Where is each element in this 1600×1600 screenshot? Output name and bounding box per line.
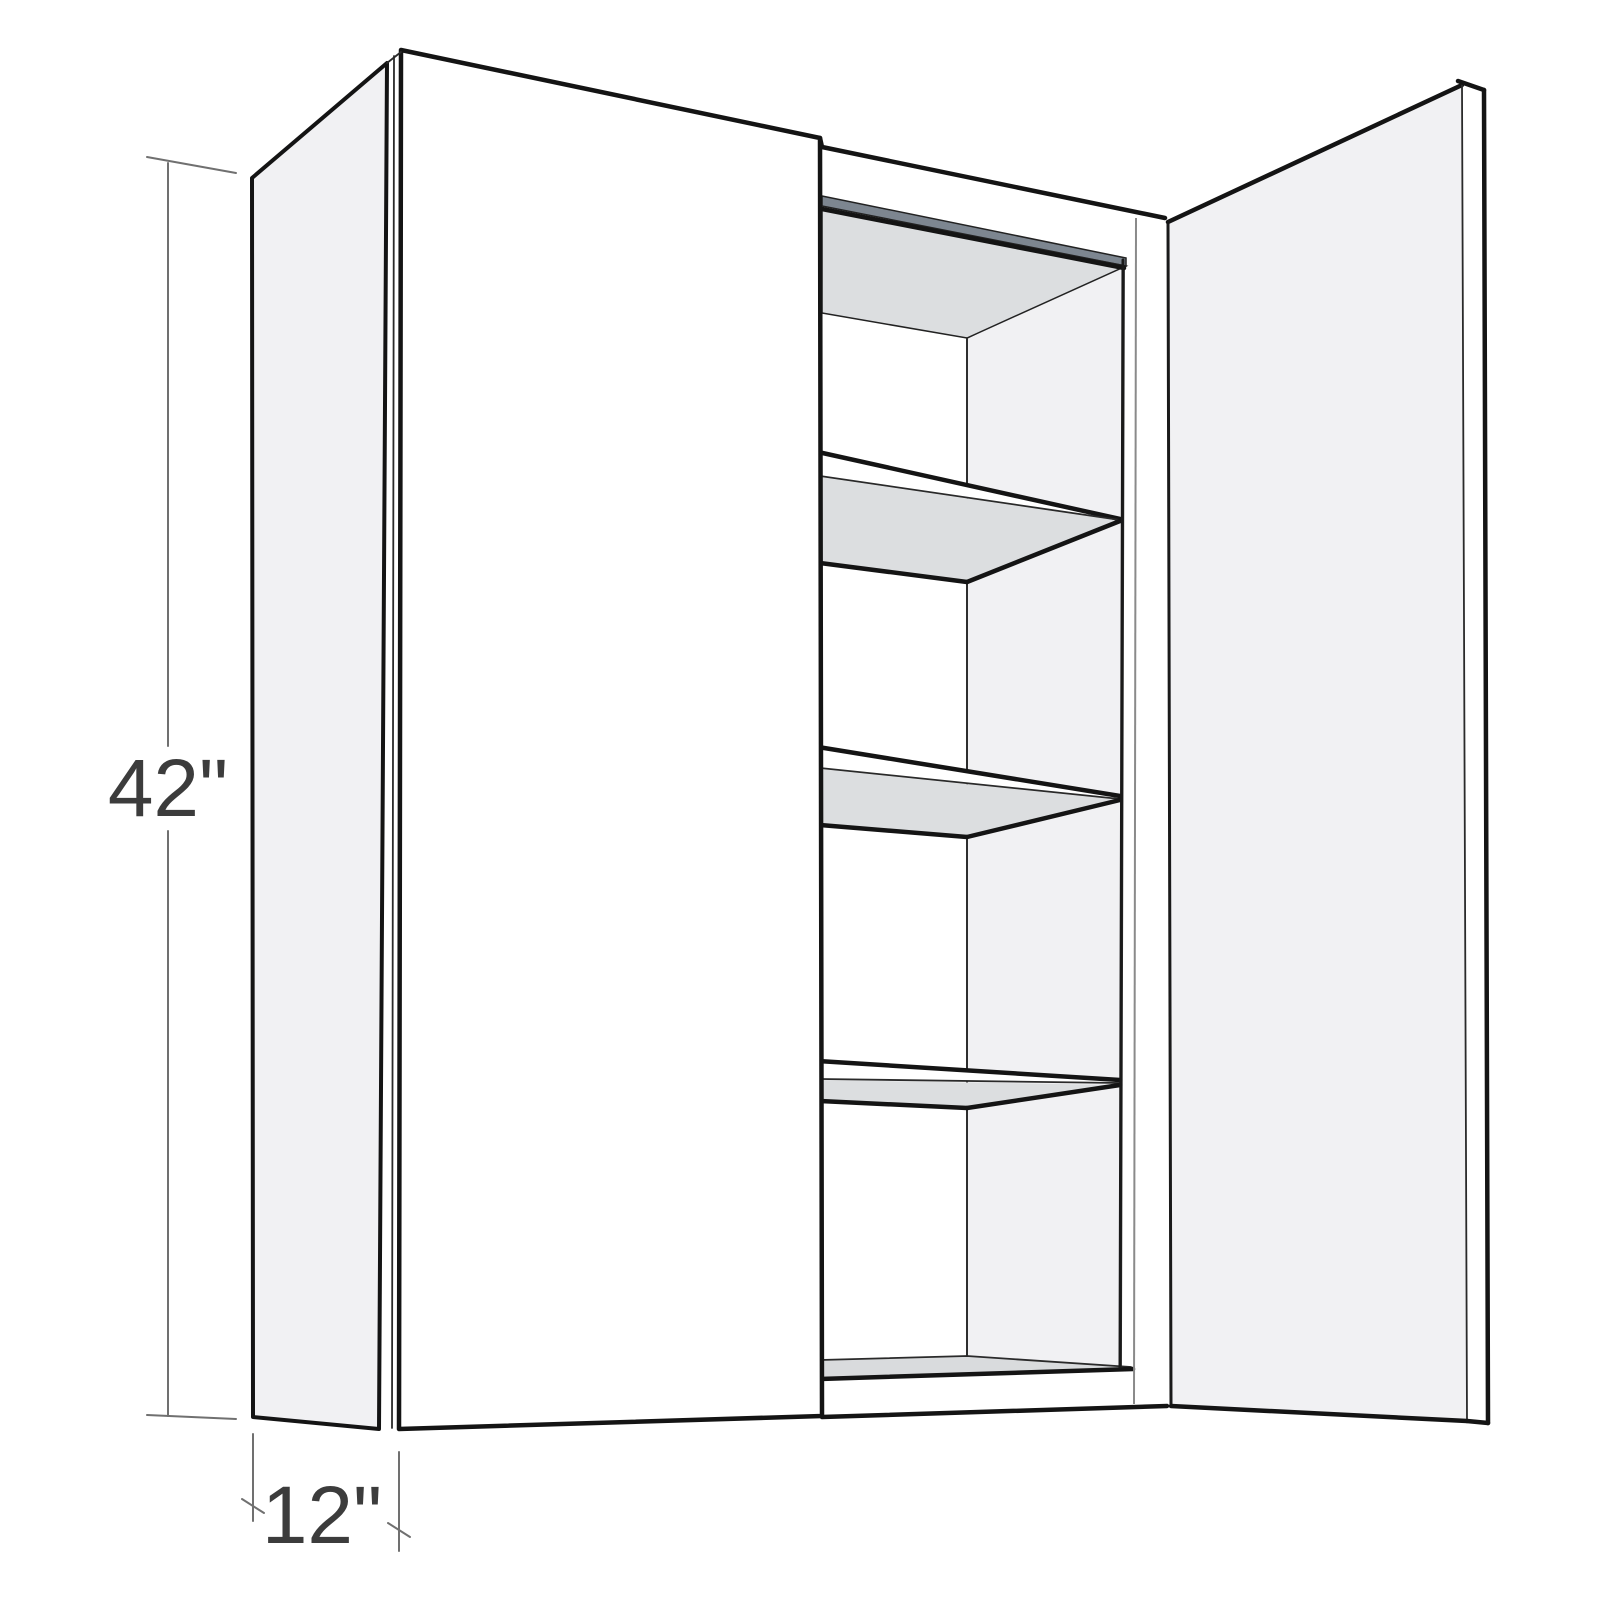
cabinet-illustration: 42" 12" [0,0,1600,1600]
depth-dimension-label: 12" [262,1470,382,1561]
height-dimension-label: 42" [108,743,228,834]
door-gap-line [392,56,394,1428]
right-door-face [1168,85,1467,1421]
left-side-panel [252,63,387,1429]
depth-dimension: 12" [242,1434,410,1561]
height-extension-top [147,157,236,173]
right-door-edge-bottom [1467,1421,1488,1423]
right-door-open [1168,81,1488,1423]
left-door-closed [387,50,822,1429]
left-door-face [399,50,822,1429]
cabinet-interior [818,138,1169,1418]
height-extension-bottom [147,1415,236,1419]
cabinet-dimension-diagram: 42" 12" [0,0,1600,1600]
height-dimension: 42" [108,157,236,1419]
